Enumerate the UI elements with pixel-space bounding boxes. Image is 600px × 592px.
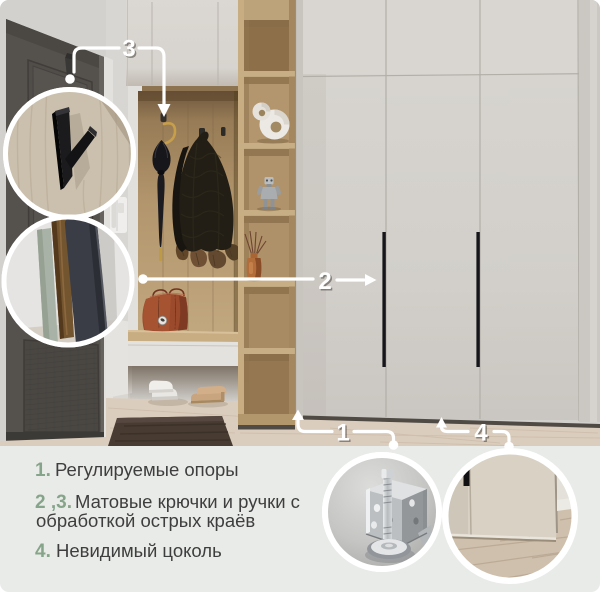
svg-text:3: 3 xyxy=(122,36,135,63)
svg-text:обработкой острых краёв: обработкой острых краёв xyxy=(36,510,255,531)
svg-text:1.: 1. xyxy=(35,460,51,481)
svg-text:Регулируемые опоры: Регулируемые опоры xyxy=(55,459,239,480)
svg-text:4.: 4. xyxy=(35,541,51,562)
svg-text:4: 4 xyxy=(474,420,488,447)
svg-text:Матовые крючки и ручки с: Матовые крючки и ручки с xyxy=(75,491,300,512)
svg-text:Невидимый цоколь: Невидимый цоколь xyxy=(56,540,222,561)
svg-text:1: 1 xyxy=(336,420,349,447)
svg-text:2: 2 xyxy=(318,268,331,295)
